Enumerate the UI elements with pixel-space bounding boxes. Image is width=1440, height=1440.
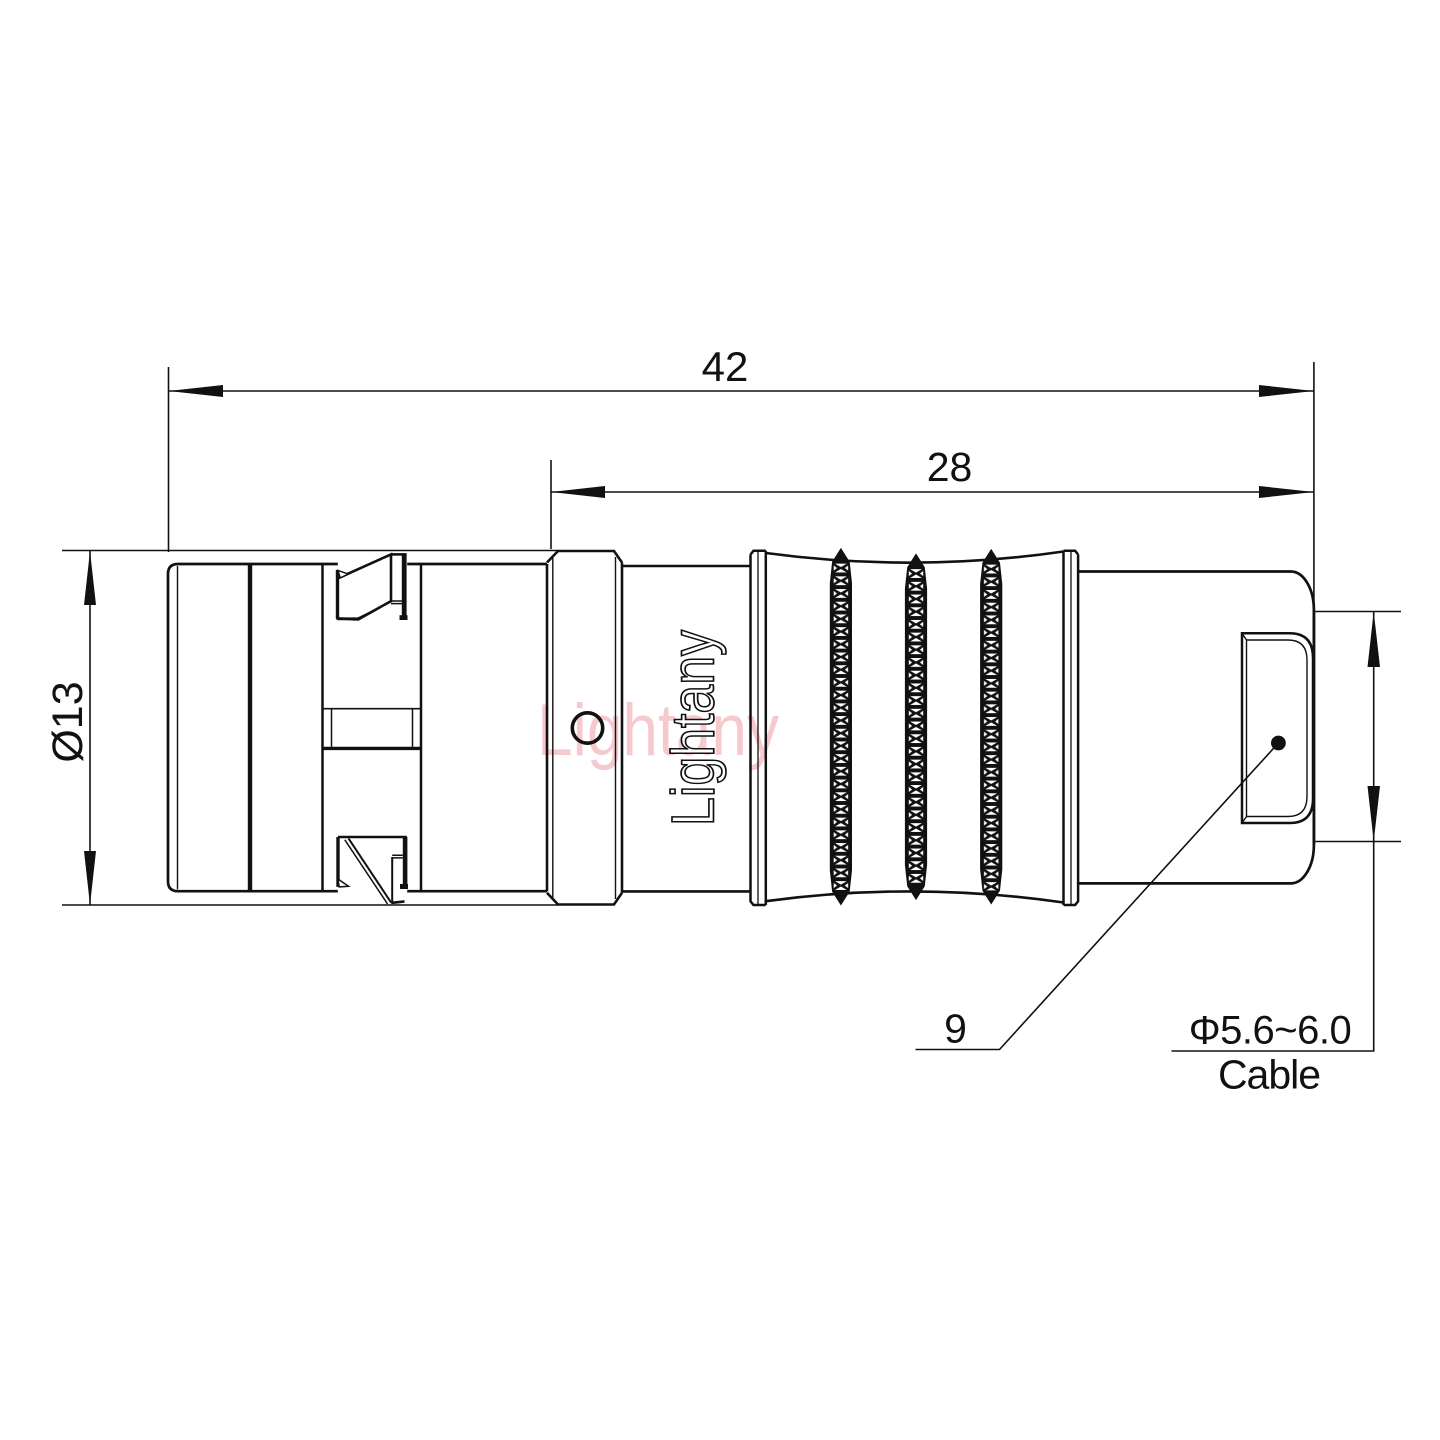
svg-text:Ø13: Ø13 <box>44 681 92 762</box>
svg-text:9: 9 <box>944 1006 967 1052</box>
svg-text:28: 28 <box>927 444 973 490</box>
svg-text:Lightany: Lightany <box>660 630 727 826</box>
svg-text:Cable: Cable <box>1218 1052 1320 1098</box>
svg-text:42: 42 <box>702 343 749 390</box>
svg-text:Φ5.6~6.0: Φ5.6~6.0 <box>1189 1009 1351 1053</box>
